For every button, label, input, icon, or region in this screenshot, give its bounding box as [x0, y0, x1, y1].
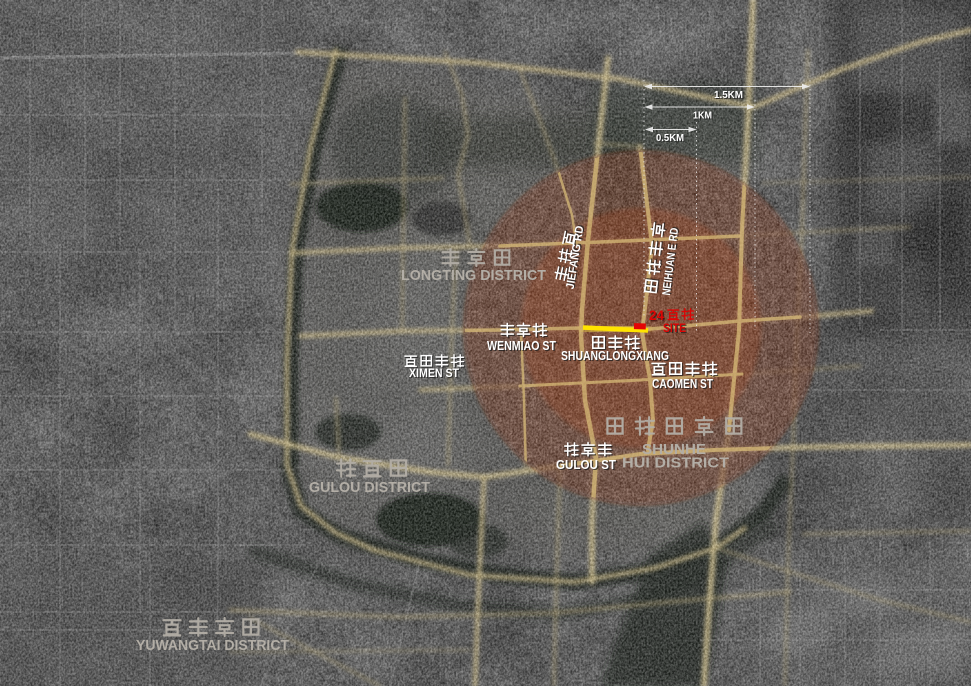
svg-text:LONGTING DISTRICT: LONGTING DISTRICT: [401, 267, 546, 284]
svg-text:XIMEN ST: XIMEN ST: [409, 366, 460, 380]
svg-text:1.5KM: 1.5KM: [714, 89, 743, 101]
svg-text:0.5KM: 0.5KM: [656, 132, 684, 144]
svg-text:WENMIAO ST: WENMIAO ST: [487, 339, 556, 353]
svg-text:CAOMEN ST: CAOMEN ST: [652, 377, 713, 391]
svg-text:SHUANGLONGXIANG: SHUANGLONGXIANG: [561, 349, 669, 363]
svg-text:SITE: SITE: [663, 321, 686, 335]
svg-text:YUWANGTAI DISTRICT: YUWANGTAI DISTRICT: [136, 637, 289, 654]
svg-text:GULOU DISTRICT: GULOU DISTRICT: [309, 479, 430, 496]
svg-text:GULOU ST: GULOU ST: [556, 458, 616, 472]
svg-text:1KM: 1KM: [693, 110, 712, 122]
svg-text:HUI DISTRICT: HUI DISTRICT: [622, 455, 729, 472]
